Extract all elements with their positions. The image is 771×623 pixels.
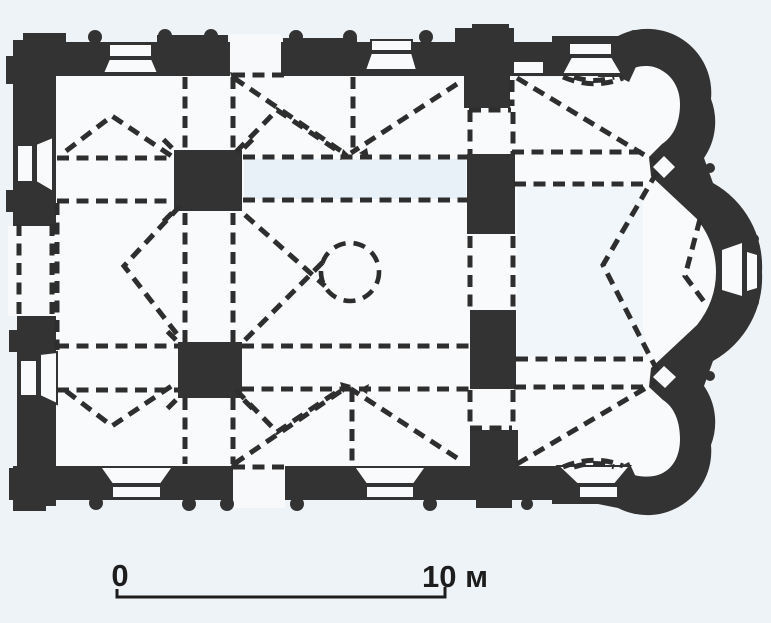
svg-text:0: 0 bbox=[111, 558, 128, 593]
svg-text:10 м: 10 м bbox=[422, 559, 488, 594]
